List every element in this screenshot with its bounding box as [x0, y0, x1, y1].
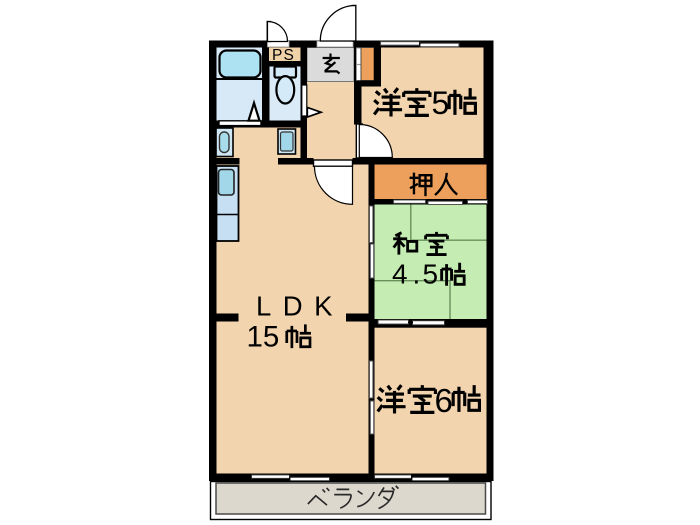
svg-text:.: .: [413, 259, 421, 290]
svg-text:15: 15: [247, 320, 280, 353]
svg-text:5: 5: [423, 259, 439, 290]
svg-text:PS: PS: [272, 47, 295, 64]
svg-text:4: 4: [392, 259, 408, 290]
svg-text:LDK: LDK: [256, 290, 344, 321]
svg-text:6: 6: [435, 382, 453, 419]
svg-text:5: 5: [432, 85, 450, 121]
